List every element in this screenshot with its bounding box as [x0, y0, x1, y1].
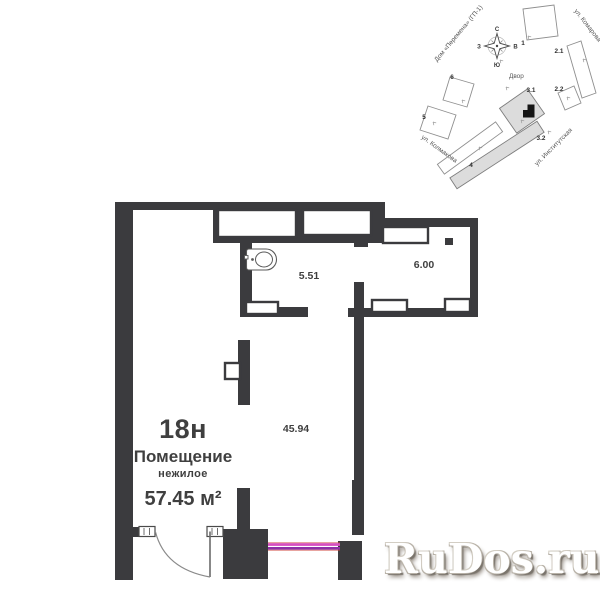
street-label-komarova: ул. Комарова	[572, 8, 600, 44]
courtyard-label: Двор	[509, 73, 524, 80]
wall-niche	[383, 227, 428, 243]
site-building-number: 3.1	[527, 87, 536, 94]
site-building-number: 4	[469, 162, 473, 169]
floorplan-scene: С Ю З В Двор Дом «Перемена» (ГП-1) ул. К…	[0, 0, 600, 600]
wall-segment	[223, 529, 268, 579]
site-building-number: 1	[521, 40, 525, 47]
wall-niche	[372, 300, 407, 312]
wall-niches	[218, 210, 470, 379]
house-name-label: Дом «Перемена» (ГП-1)	[433, 4, 484, 63]
site-building	[443, 77, 474, 107]
compass-south: Ю	[494, 63, 500, 69]
storefront-line	[268, 543, 340, 546]
site-building-number: 6	[450, 74, 454, 81]
compass-center-dot	[496, 45, 498, 47]
wall-segment	[378, 218, 478, 227]
wall-segment	[352, 480, 363, 535]
site-building-number: 2.2	[555, 86, 564, 93]
room-area-label: 5.51	[299, 270, 320, 282]
site-tick	[500, 60, 503, 63]
compass-north: С	[495, 27, 500, 33]
door-jamb	[139, 527, 155, 537]
room-area-label: 45.94	[283, 423, 309, 435]
site-tick	[506, 87, 509, 90]
floor-plan: 5.516.0045.94	[115, 202, 478, 580]
site-buildings	[420, 5, 596, 189]
room-area-label: 6.00	[414, 259, 435, 271]
compass-rose-icon: С Ю З В	[477, 27, 518, 69]
compass-east: В	[513, 45, 518, 51]
watermark: RuDos.ru	[384, 539, 600, 580]
site-building-number: 3.2	[537, 135, 546, 142]
wall-niche	[225, 363, 240, 379]
storefront-line	[268, 550, 340, 551]
listing-floorplan-image: С Ю З В Двор Дом «Перемена» (ГП-1) ул. К…	[0, 0, 600, 600]
wall-segment	[115, 202, 133, 580]
premise-type: Помещение	[101, 447, 265, 467]
site-plan: С Ю З В Двор Дом «Перемена» (ГП-1) ул. К…	[420, 4, 600, 189]
street-label-kolmakova: ул. Колмакова	[420, 134, 459, 165]
wall-segment	[470, 218, 478, 317]
wall-niche	[218, 210, 296, 237]
unit-info: 18н Помещение нежилое 57.45 м²	[101, 414, 265, 511]
total-area: 57.45 м²	[101, 488, 265, 511]
site-building	[523, 5, 558, 40]
wall-niche	[303, 210, 371, 235]
compass-west: З	[477, 45, 481, 51]
wall-segment	[338, 541, 362, 580]
premise-subtype: нежилое	[101, 468, 265, 480]
site-tick	[548, 131, 551, 134]
storefront-line	[268, 542, 340, 543]
wall-niche	[246, 302, 278, 314]
wall-niche	[445, 299, 470, 312]
site-building-number: 2.1	[555, 48, 564, 55]
unit-number: 18н	[101, 414, 265, 445]
storefront-opening-lines	[268, 542, 340, 551]
storefront-line	[268, 547, 340, 550]
wall-segment	[445, 238, 453, 245]
door-swing-arc	[156, 532, 211, 577]
sink-icon	[245, 249, 277, 270]
site-tick	[479, 147, 482, 150]
site-building-number: 5	[422, 114, 426, 121]
